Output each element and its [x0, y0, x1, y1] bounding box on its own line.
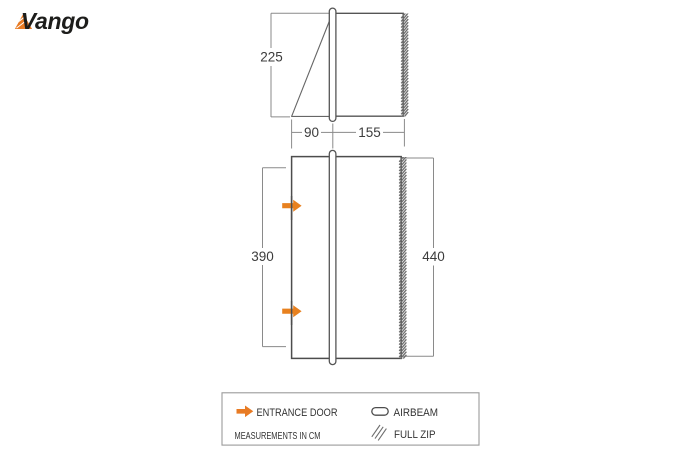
svg-text:Vango: Vango	[21, 8, 89, 34]
svg-text:ENTRANCE DOOR: ENTRANCE DOOR	[257, 407, 338, 419]
svg-text:AIRBEAM: AIRBEAM	[394, 407, 439, 419]
svg-text:MEASUREMENTS IN CM: MEASUREMENTS IN CM	[235, 431, 321, 442]
svg-text:155: 155	[358, 125, 381, 140]
svg-text:390: 390	[251, 249, 274, 264]
svg-text:90: 90	[304, 125, 319, 140]
svg-text:FULL ZIP: FULL ZIP	[394, 429, 436, 441]
svg-text:225: 225	[260, 50, 283, 65]
svg-text:440: 440	[422, 249, 445, 264]
